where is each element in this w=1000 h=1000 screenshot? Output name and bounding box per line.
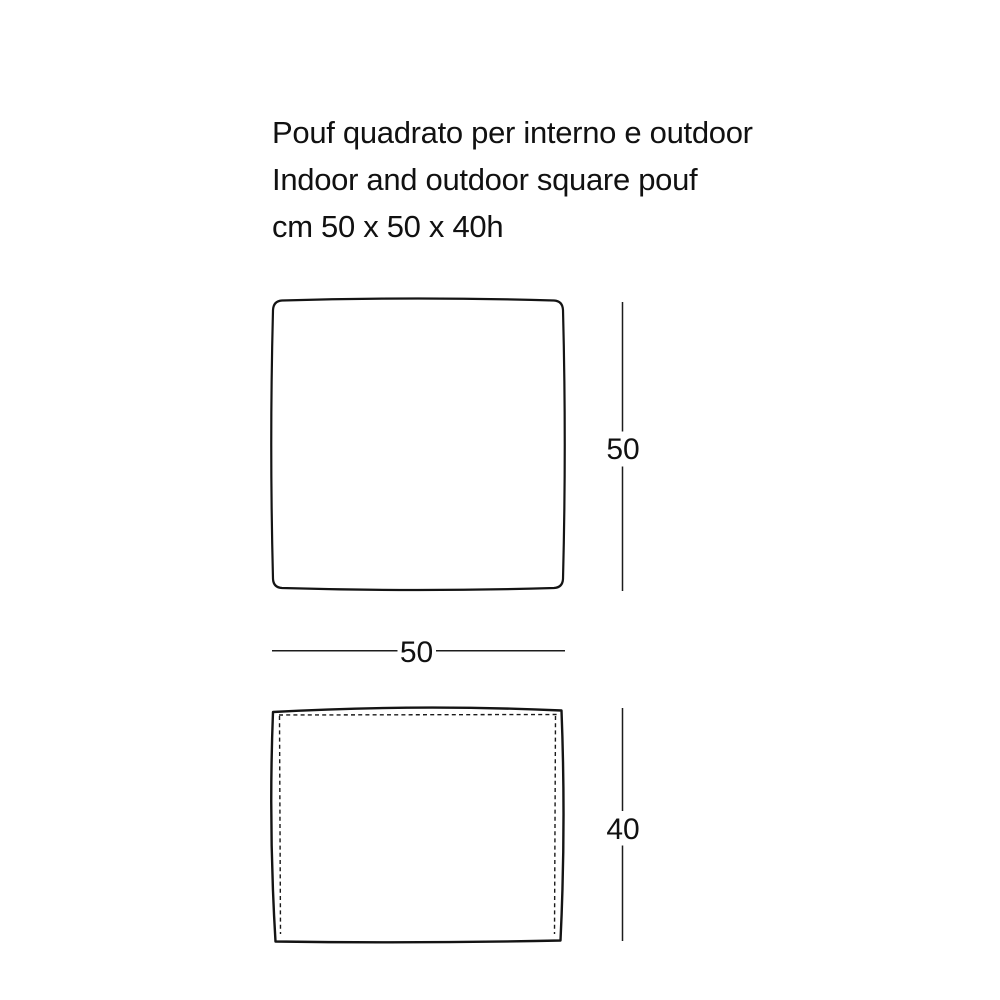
- pouf-technical-drawing: 50 50 40: [0, 0, 1000, 1000]
- product-dimension-sheet: Pouf quadrato per interno e outdoor Indo…: [0, 0, 1000, 1000]
- dim-label-top-depth: 50: [606, 433, 639, 466]
- seam-dashed-left: [280, 716, 281, 934]
- seam-dashed-right: [555, 716, 556, 934]
- dim-label-height: 40: [606, 813, 639, 846]
- top-view-outline: [271, 299, 565, 591]
- front-view-outline: [271, 708, 563, 943]
- seam-dashed-top: [279, 715, 557, 716]
- dim-label-width: 50: [400, 636, 433, 669]
